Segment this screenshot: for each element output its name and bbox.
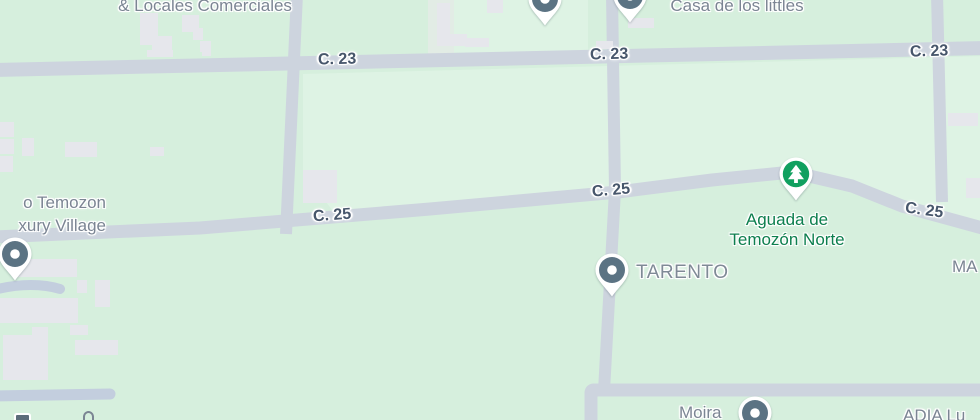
road-label-c23-left: C. 23 bbox=[318, 51, 357, 70]
building bbox=[948, 113, 978, 126]
building bbox=[65, 142, 97, 157]
pin-dot-icon bbox=[750, 408, 760, 418]
driveway bbox=[0, 285, 60, 290]
building bbox=[22, 138, 34, 156]
poi-label-line: Temozón Norte bbox=[729, 230, 844, 249]
building bbox=[95, 280, 110, 307]
clipped-text-fragment bbox=[83, 411, 94, 420]
building bbox=[966, 178, 980, 198]
poi-label-temozon-village[interactable]: o Temozon xury Village bbox=[0, 191, 106, 237]
road-vertical-right bbox=[937, 0, 942, 202]
building bbox=[437, 3, 450, 46]
building bbox=[0, 122, 14, 137]
poi-label-ma[interactable]: MA bbox=[952, 256, 978, 277]
pin-dot-icon bbox=[607, 265, 617, 275]
poi-label-casa-de-los-littles[interactable]: Casa de los littles bbox=[670, 0, 803, 16]
building bbox=[465, 38, 489, 47]
building bbox=[0, 156, 13, 172]
poi-label-line: o Temozon bbox=[23, 193, 106, 212]
poi-dot-pin[interactable] bbox=[0, 236, 34, 282]
map-canvas[interactable]: C. 23 C. 23 C. 23 C. 25 C. 25 C. 25 & Lo… bbox=[0, 0, 980, 420]
poi-dot-pin[interactable] bbox=[526, 0, 564, 27]
building bbox=[75, 340, 118, 355]
road-vertical-left bbox=[286, 0, 297, 234]
building bbox=[202, 50, 211, 56]
road-label-c23-right: C. 23 bbox=[910, 42, 949, 61]
building bbox=[0, 139, 14, 154]
pin-dot-icon bbox=[10, 249, 20, 259]
building bbox=[150, 147, 164, 156]
road-label-c25-left: C. 25 bbox=[312, 206, 351, 227]
poi-dot-pin[interactable] bbox=[736, 395, 774, 420]
building bbox=[487, 0, 503, 13]
building bbox=[450, 34, 467, 46]
clipped-icon-fragment bbox=[16, 415, 29, 420]
building bbox=[3, 335, 48, 380]
building bbox=[77, 280, 87, 293]
poi-label-tarento[interactable]: TARENTO bbox=[636, 262, 729, 283]
poi-label-line: xury Village bbox=[18, 216, 106, 235]
building bbox=[0, 298, 78, 323]
road-label-c25-middle: C. 25 bbox=[591, 180, 631, 201]
building bbox=[303, 170, 337, 203]
road-label-c23-middle: C. 23 bbox=[590, 46, 629, 65]
poi-label-aguada-de-temozon-norte[interactable]: Aguada de Temozón Norte bbox=[729, 210, 844, 250]
poi-label-adia[interactable]: ADIA Lu bbox=[903, 405, 965, 420]
poi-dot-pin[interactable] bbox=[611, 0, 649, 24]
poi-label-moira[interactable]: Moira bbox=[679, 402, 722, 420]
poi-dot-pin[interactable] bbox=[593, 252, 631, 298]
building bbox=[193, 28, 203, 40]
driveway bbox=[0, 394, 110, 396]
poi-label-locales-comerciales[interactable]: & Locales Comerciales bbox=[118, 0, 292, 16]
park-tree-pin[interactable] bbox=[777, 156, 815, 202]
building bbox=[70, 325, 88, 335]
building bbox=[147, 50, 173, 57]
poi-label-line: Aguada de bbox=[746, 210, 828, 229]
